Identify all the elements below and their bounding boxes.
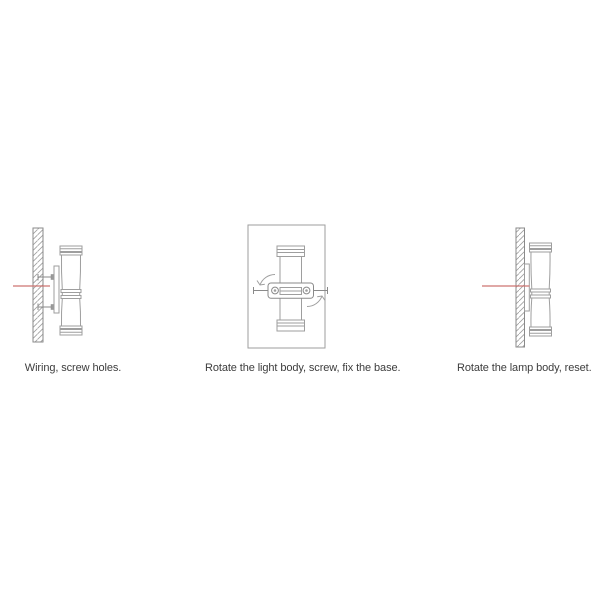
lamp-side-view-icon	[530, 243, 552, 336]
mounting-bracket-icon	[268, 283, 314, 298]
step3-illustration	[475, 224, 580, 350]
wall-cross-section-icon	[33, 228, 43, 342]
instruction-sheet: Wiring, screw holes. Rotate the light bo…	[0, 0, 600, 600]
step2-illustration	[240, 220, 370, 354]
mounting-plate-icon	[525, 264, 530, 311]
step3-caption: Rotate the lamp body, reset.	[457, 361, 587, 375]
mounting-plate-icon	[54, 266, 59, 313]
step2-caption: Rotate the light body, screw, fix the ba…	[205, 361, 375, 375]
wall-cross-section-icon	[516, 228, 525, 347]
step1-illustration	[10, 224, 120, 350]
lamp-side-view-icon	[60, 246, 82, 335]
step1-caption: Wiring, screw holes.	[10, 361, 136, 375]
